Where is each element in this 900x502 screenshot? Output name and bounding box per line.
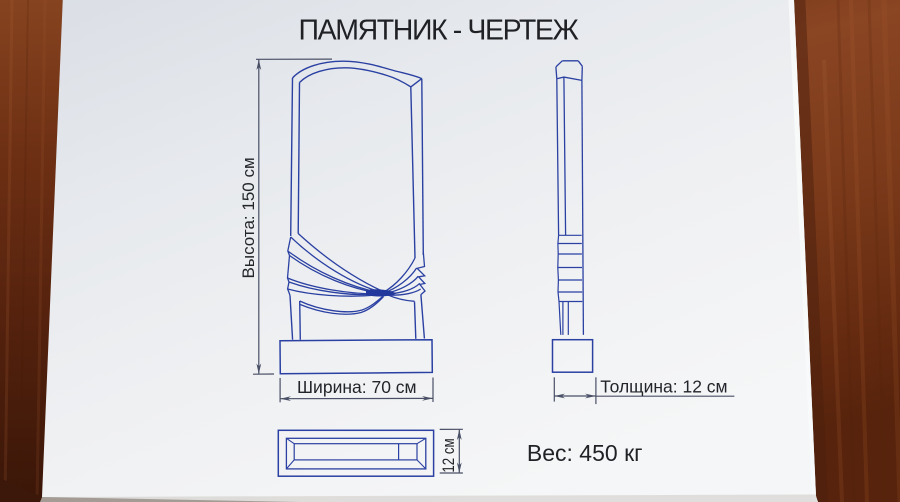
svg-text:Высота: 150 см: Высота: 150 см	[239, 157, 258, 278]
svg-text:Толщина: 12 см: Толщина: 12 см	[600, 377, 727, 397]
svg-text:Ширина: 70 см: Ширина: 70 см	[297, 377, 417, 397]
svg-text:12 см: 12 см	[440, 438, 459, 472]
svg-text:Вес: 450 кг: Вес: 450 кг	[527, 440, 643, 466]
svg-text:ПАМЯТНИК - ЧЕРТЕЖ: ПАМЯТНИК - ЧЕРТЕЖ	[299, 14, 579, 46]
